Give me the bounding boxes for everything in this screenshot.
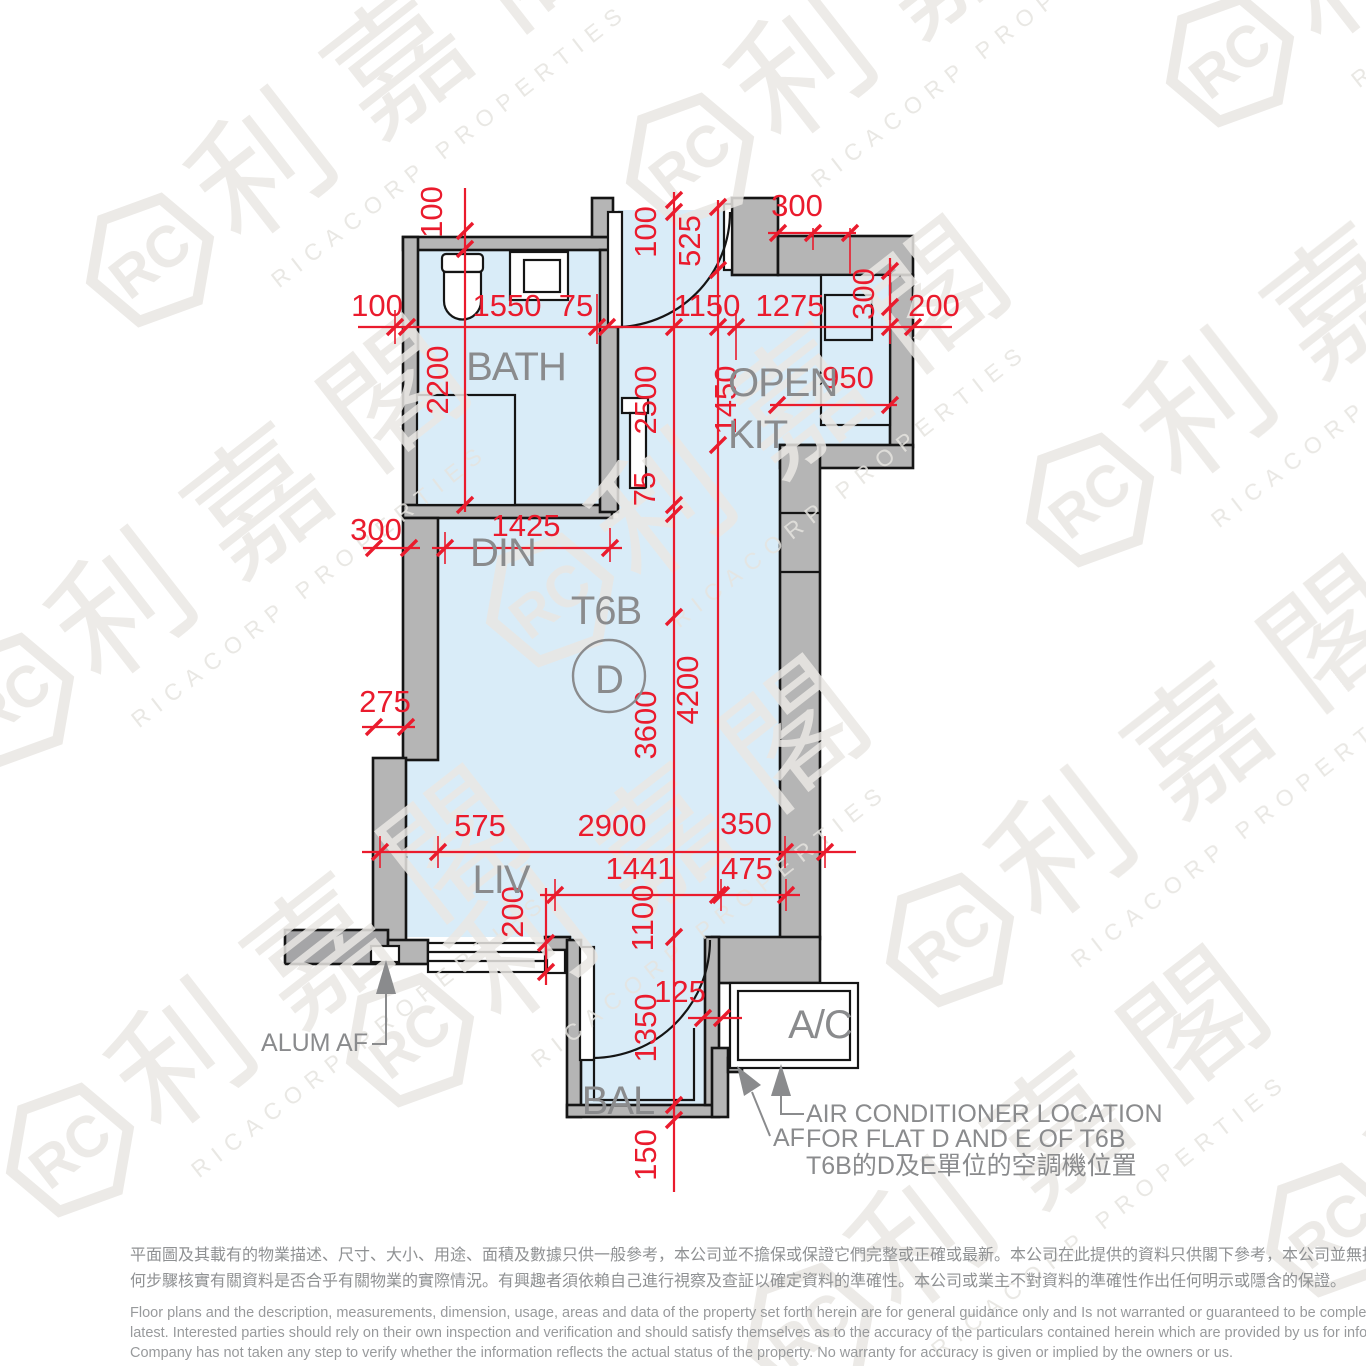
dim-label-2900: 2900 bbox=[578, 808, 647, 843]
dim-label-1275: 1275 bbox=[756, 288, 825, 323]
room-label-kit: KIT bbox=[728, 413, 788, 457]
dim-label-350: 350 bbox=[720, 806, 772, 841]
dim-label-1350: 1350 bbox=[628, 994, 663, 1063]
unit-flat-label: D bbox=[595, 658, 623, 702]
dim-label-4200: 4200 bbox=[670, 656, 705, 725]
annotation-ac-line3: T6B的D及E單位的空調機位置 bbox=[806, 1152, 1137, 1180]
annotation-af: AF bbox=[773, 1124, 805, 1152]
af-arrow-icon bbox=[737, 1066, 761, 1096]
ac-note-leader-line bbox=[781, 1096, 804, 1114]
room-label-liv: LIV bbox=[472, 858, 530, 902]
dim-label-300-top: 300 bbox=[771, 188, 823, 223]
disclaimer-cn-line2: 何步驟核實有關資料是否合乎有關物業的實際情況。有興趣者須依賴自己進行視察及查証以… bbox=[130, 1269, 1280, 1295]
dim-label-2200: 2200 bbox=[420, 346, 455, 415]
disclaimer-en-line2: latest. Interested parties should rely o… bbox=[130, 1323, 1280, 1343]
af-leader-line bbox=[752, 1092, 770, 1136]
dim-label-100-left: 100 bbox=[351, 288, 403, 323]
dim-label-475: 475 bbox=[721, 851, 773, 886]
room-label-bath: BATH bbox=[466, 345, 566, 389]
annotation-alum-af: ALUM AF bbox=[261, 1029, 368, 1057]
floor-plan-page: RC 利嘉閣 RICACORP PROPERTIES bbox=[0, 0, 1366, 1366]
dim-label-1441: 1441 bbox=[606, 851, 675, 886]
disclaimer-en-line3: Company has not taken any step to verify… bbox=[130, 1343, 1280, 1363]
wall-ac-step bbox=[712, 1048, 728, 1117]
dim-label-275: 275 bbox=[359, 684, 411, 719]
dim-label-1550: 1550 bbox=[473, 288, 542, 323]
wall-bath-top bbox=[403, 237, 612, 250]
room-label-ac: A/C bbox=[788, 1003, 852, 1047]
room-label-din: DIN bbox=[470, 531, 536, 575]
annotation-ac-line2: FOR FLAT D AND E OF T6B bbox=[806, 1125, 1126, 1153]
annotation-ac-line1: AIR CONDITIONER LOCATION bbox=[806, 1100, 1163, 1128]
dim-label-2500: 2500 bbox=[628, 366, 663, 435]
disclaimer-cn-line1: 平面圖及其載有的物業描述、尺寸、大小、用途、面積及數據只供一般參考，本公司並不擔… bbox=[130, 1243, 1280, 1269]
floor-plan-canvas: RC 利嘉閣 RICACORP PROPERTIES bbox=[0, 0, 1366, 1366]
dim-label-100-wall: 100 bbox=[414, 186, 449, 238]
dim-label-525: 525 bbox=[672, 215, 707, 267]
dim-label-75: 75 bbox=[559, 288, 593, 323]
dim-label-100-top: 100 bbox=[628, 206, 663, 258]
room-label-open: OPEN bbox=[728, 361, 837, 405]
dim-label-200: 200 bbox=[908, 288, 960, 323]
disclaimer-en-line1: Floor plans and the description, measure… bbox=[130, 1303, 1280, 1323]
dim-label-575: 575 bbox=[454, 808, 506, 843]
disclaimer-block: 平面圖及其載有的物業描述、尺寸、大小、用途、面積及數據只供一般參考，本公司並不擔… bbox=[130, 1243, 1280, 1363]
dim-label-300-left: 300 bbox=[350, 512, 402, 547]
room-label-bal: BAL bbox=[582, 1079, 655, 1123]
dim-label-3600: 3600 bbox=[628, 691, 663, 760]
dim-label-300-right: 300 bbox=[846, 268, 881, 320]
dim-label-75-wall: 75 bbox=[627, 472, 662, 506]
toilet-cistern bbox=[442, 254, 483, 272]
dim-label-1150: 1150 bbox=[674, 288, 741, 323]
dim-label-1100: 1100 bbox=[625, 885, 660, 952]
dim-label-150: 150 bbox=[628, 1129, 663, 1181]
entrance-door-leaf bbox=[608, 212, 622, 327]
unit-tower-label: T6B bbox=[571, 589, 641, 633]
wall-bottom-right-block bbox=[712, 937, 820, 983]
